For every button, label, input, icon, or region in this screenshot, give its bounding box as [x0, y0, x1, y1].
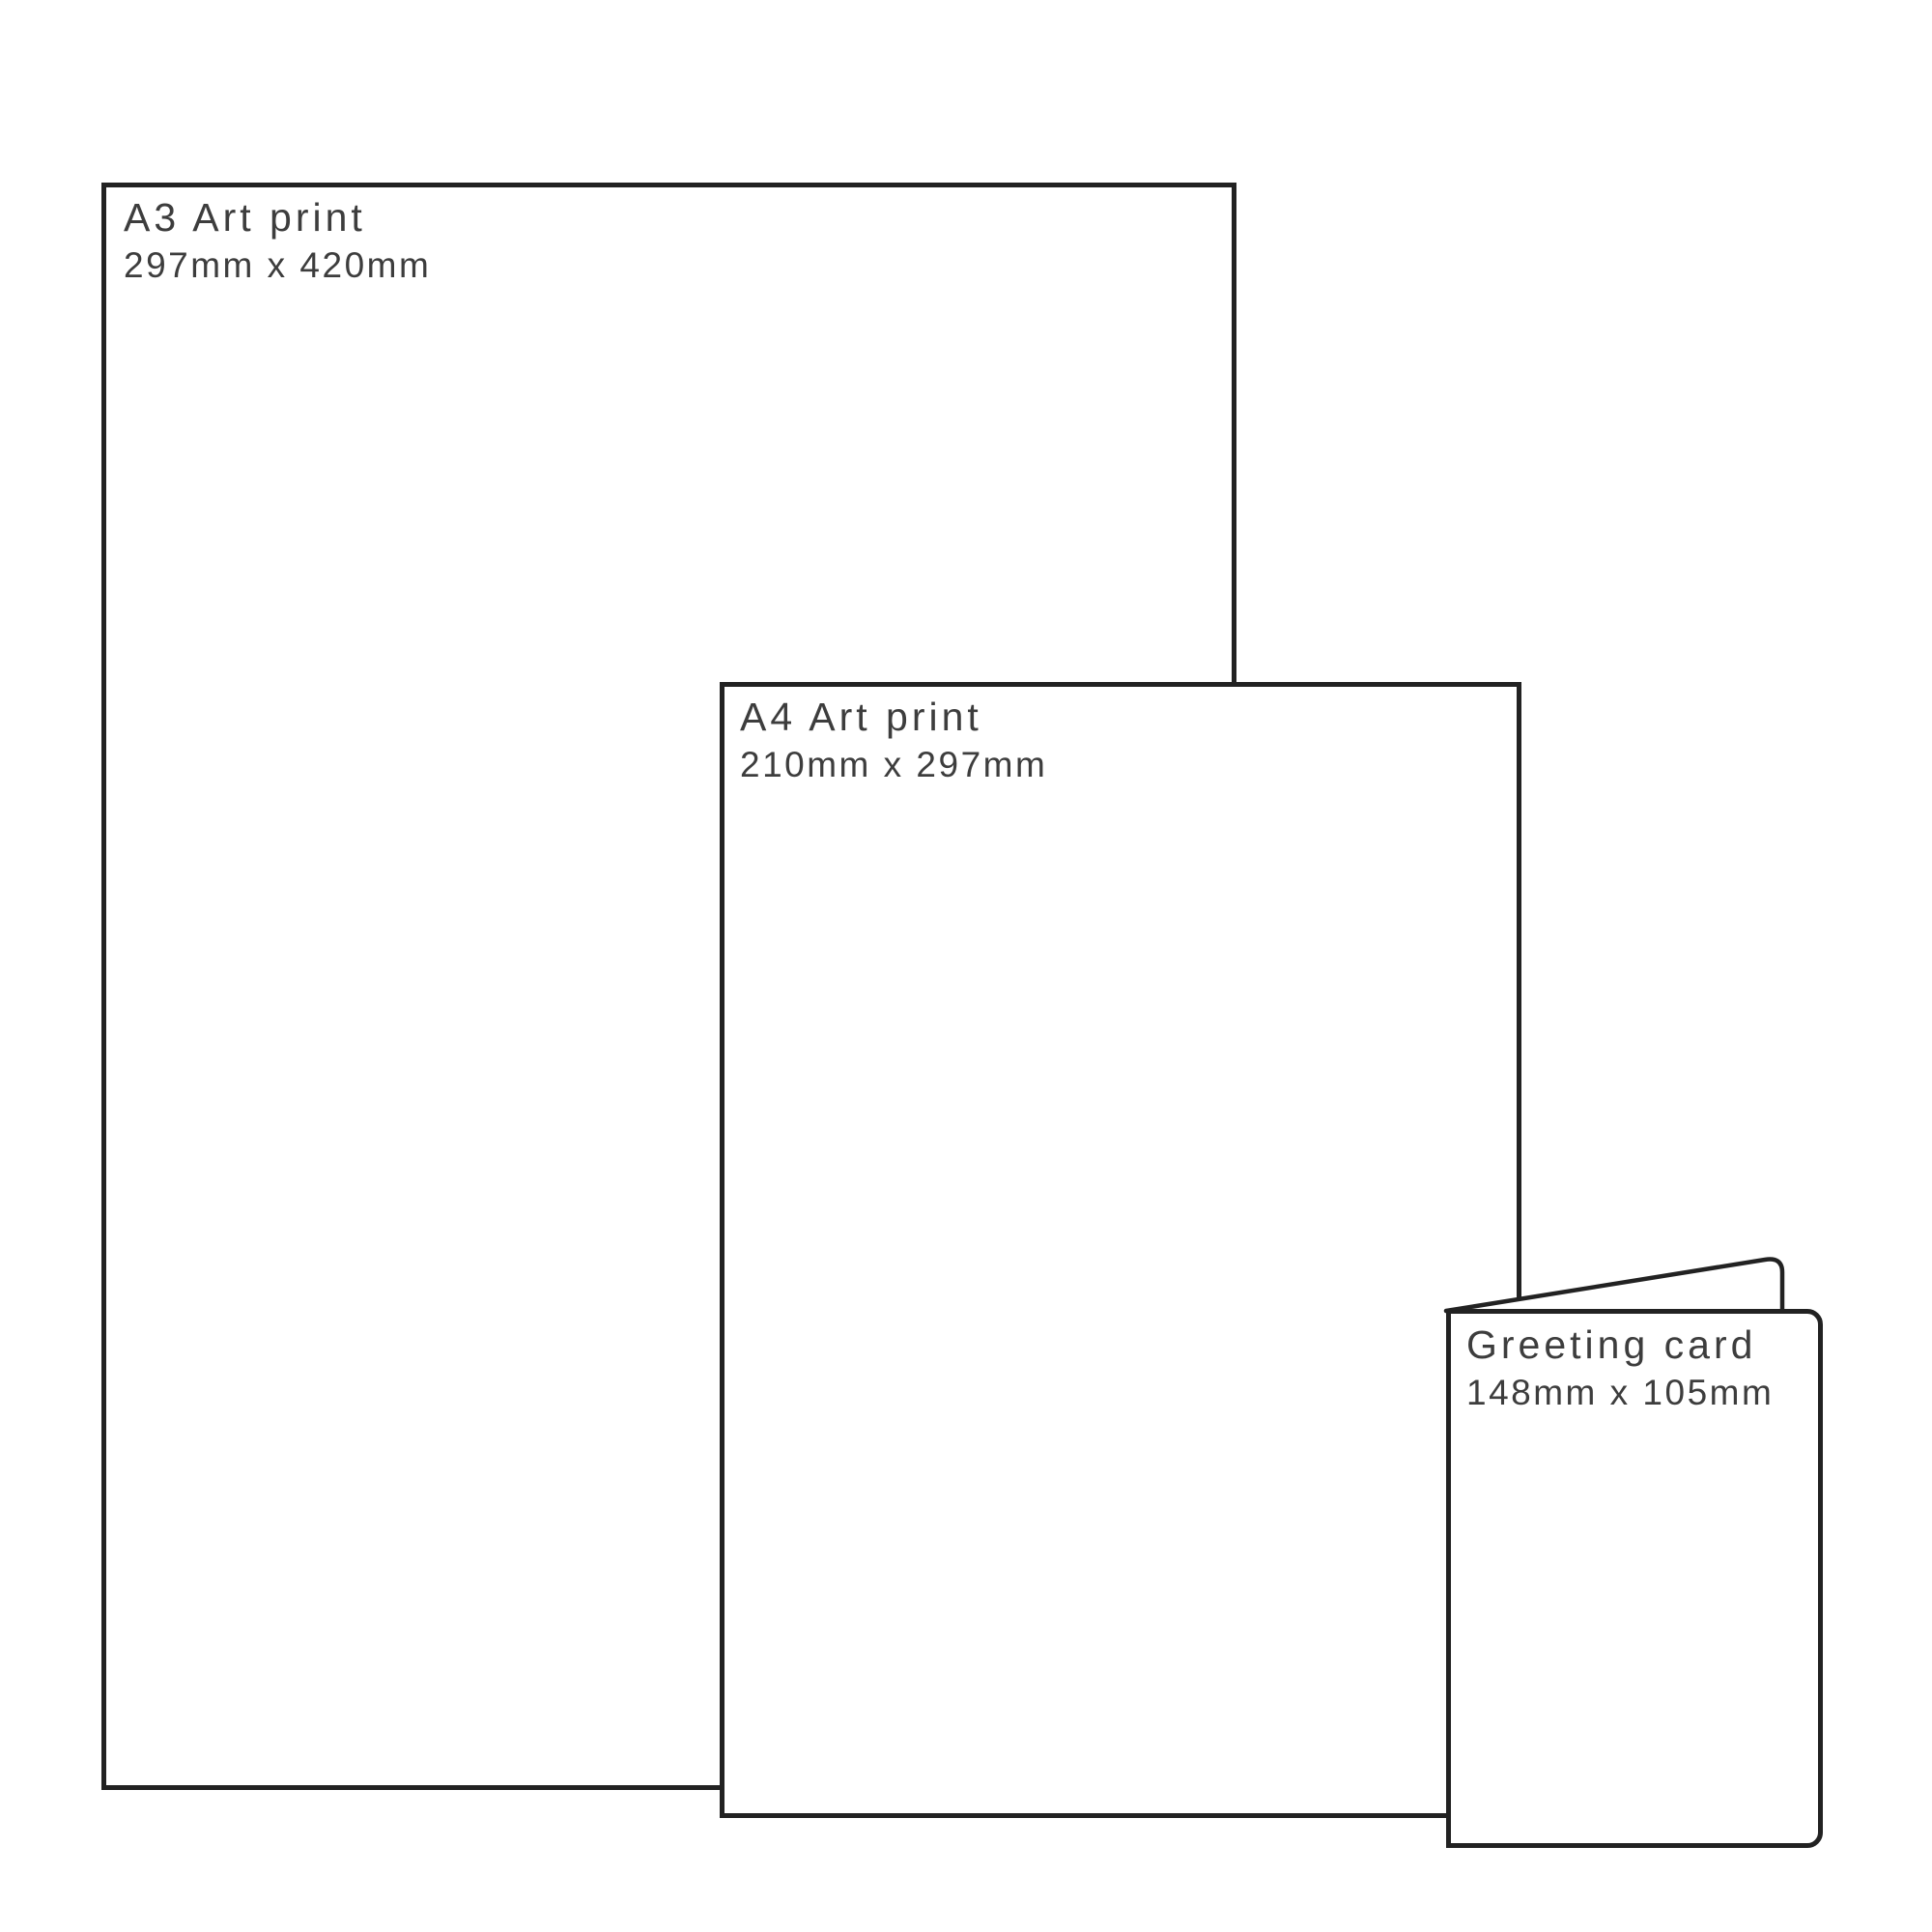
- a3-title: A3 Art print: [124, 196, 431, 240]
- a4-title: A4 Art print: [740, 696, 1047, 739]
- a4-label: A4 Art print 210mm x 297mm: [740, 696, 1047, 786]
- a3-dimensions: 297mm x 420mm: [124, 245, 431, 287]
- greeting-card-title: Greeting card: [1466, 1323, 1774, 1367]
- size-comparison-diagram: A3 Art print 297mm x 420mm A4 Art print …: [0, 0, 1932, 1932]
- greeting-card-label: Greeting card 148mm x 105mm: [1466, 1323, 1774, 1414]
- a4-print-outline: [720, 682, 1521, 1818]
- a3-label: A3 Art print 297mm x 420mm: [124, 196, 431, 287]
- a4-dimensions: 210mm x 297mm: [740, 745, 1047, 786]
- greeting-card-dimensions: 148mm x 105mm: [1466, 1373, 1774, 1414]
